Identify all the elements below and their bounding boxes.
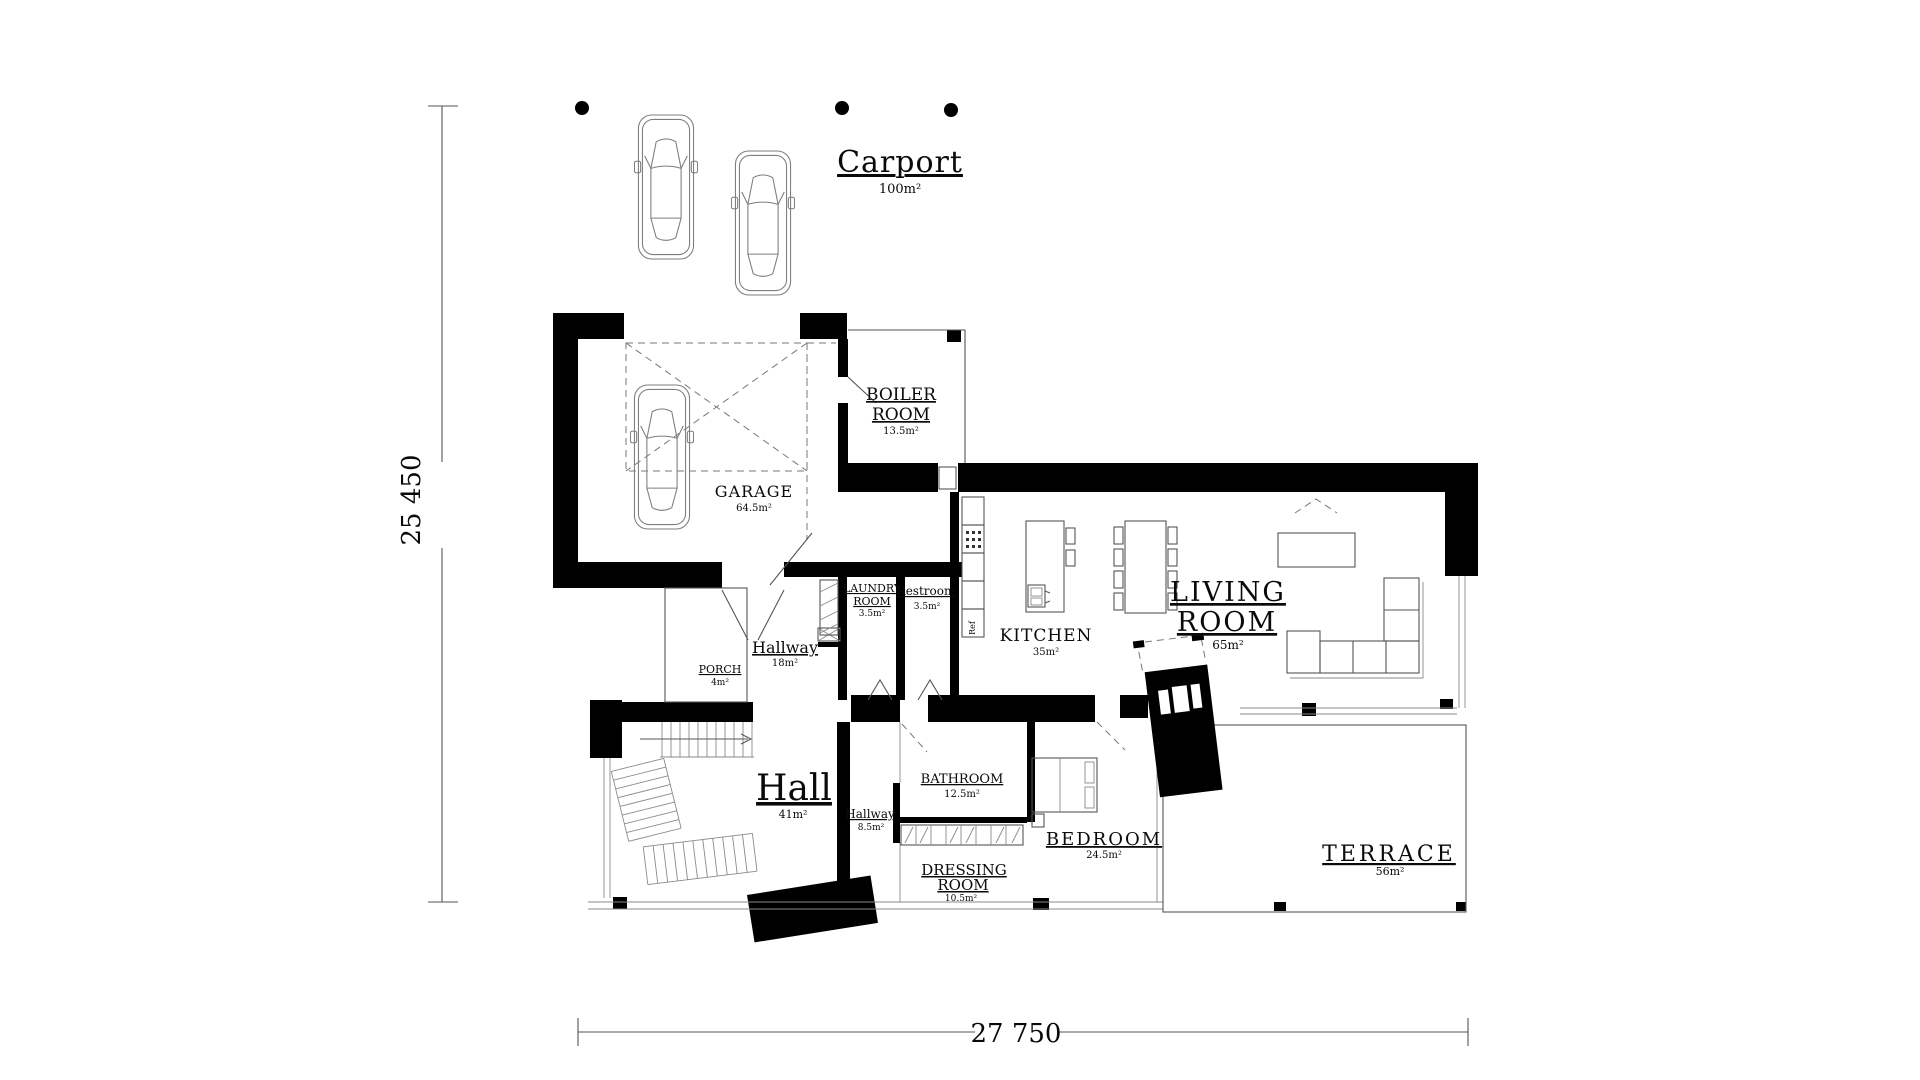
carport-column [835, 101, 849, 115]
kitchen-area-label: 35m² [1033, 647, 1059, 658]
bathroom-door [902, 724, 927, 752]
garage-area-label: 64.5m² [736, 503, 772, 514]
dim-vertical-label: 25 450 [397, 455, 427, 546]
bathroom-label: BATHROOM [921, 772, 1004, 787]
room-labels: Carport 100m² BOILER ROOM 13.5m² GARAGE … [699, 145, 1456, 904]
dressing-room-area-label: 10.5m² [945, 894, 978, 904]
staircase [611, 722, 757, 885]
laundry-room-label: LAUNDRY [843, 582, 902, 595]
porch-area-label: 4m² [711, 678, 729, 688]
living-room-label: LIVING [1170, 577, 1286, 608]
boiler-room-area-label: 13.5m² [883, 426, 919, 437]
carport-label: Carport [837, 145, 963, 180]
car-icon [731, 151, 794, 295]
hallway2-area-label: 8.5m² [858, 823, 885, 833]
hallway2-label: Hallway [845, 807, 895, 821]
terrace-area-label: 56m² [1376, 865, 1405, 878]
laundry-room-area-label: 3.5m² [859, 609, 886, 619]
hall-area-label: 41m² [779, 808, 808, 821]
hallway-area-label: 18m² [772, 658, 798, 669]
laundry-shelf [820, 580, 838, 635]
porch-outline [665, 588, 747, 702]
hallway-cabinet [818, 628, 840, 647]
restroom-area-label: 3.5m² [914, 602, 941, 612]
dining-table [1125, 521, 1166, 613]
hall-label: Hall [756, 768, 832, 809]
car-icon [630, 385, 693, 529]
tv-stand [1278, 533, 1355, 567]
floor-plan: 25 450 27 750 [0, 0, 1920, 1080]
car-icon [634, 115, 697, 259]
sofa [1287, 578, 1423, 678]
bedroom-label: BEDROOM [1046, 829, 1162, 850]
bed [1032, 758, 1097, 812]
fridge-label: Ref [968, 620, 977, 635]
carport-area [575, 101, 958, 295]
bar-stool [1066, 550, 1075, 566]
hallway-label: Hallway [752, 638, 818, 657]
porch-label: PORCH [699, 663, 742, 676]
bedroom-area-label: 24.5m² [1086, 850, 1122, 861]
window-mark [1295, 499, 1337, 513]
garage-area [626, 343, 836, 585]
garage-label: GARAGE [715, 482, 793, 501]
carport-column [944, 103, 958, 117]
boiler-room-label: BOILER [866, 385, 937, 405]
dimension-vertical: 25 450 [397, 106, 458, 902]
dining-set [1114, 521, 1177, 613]
pillow [1085, 787, 1094, 808]
living-room-area-label: 65m² [1212, 638, 1244, 652]
bedroom-door [1097, 722, 1125, 750]
pillow [1085, 762, 1094, 783]
carport-column [575, 101, 589, 115]
dimension-horizontal: 27 750 [578, 1018, 1468, 1049]
kitchen-furniture: Ref [962, 497, 1075, 637]
door-leaf [770, 533, 812, 585]
kitchen-label: KITCHEN [1000, 626, 1093, 646]
dressing-room-label2: ROOM [937, 876, 988, 894]
terrace-label: TERRACE [1322, 842, 1456, 867]
bathroom-area-label: 12.5m² [944, 789, 980, 800]
dim-horizontal-label: 27 750 [971, 1019, 1062, 1049]
laundry-room-label2: ROOM [853, 595, 891, 608]
thin-outlines [588, 330, 1466, 912]
carport-area-label: 100m² [879, 182, 921, 197]
wardrobe [901, 825, 1023, 845]
boiler-room-label2: ROOM [872, 405, 930, 425]
porch-double-door [722, 590, 784, 640]
restroom-label: Restroom [897, 584, 956, 598]
bar-stool [1066, 528, 1075, 544]
living-room-label2: ROOM [1177, 607, 1277, 638]
living-furniture [1278, 533, 1423, 678]
